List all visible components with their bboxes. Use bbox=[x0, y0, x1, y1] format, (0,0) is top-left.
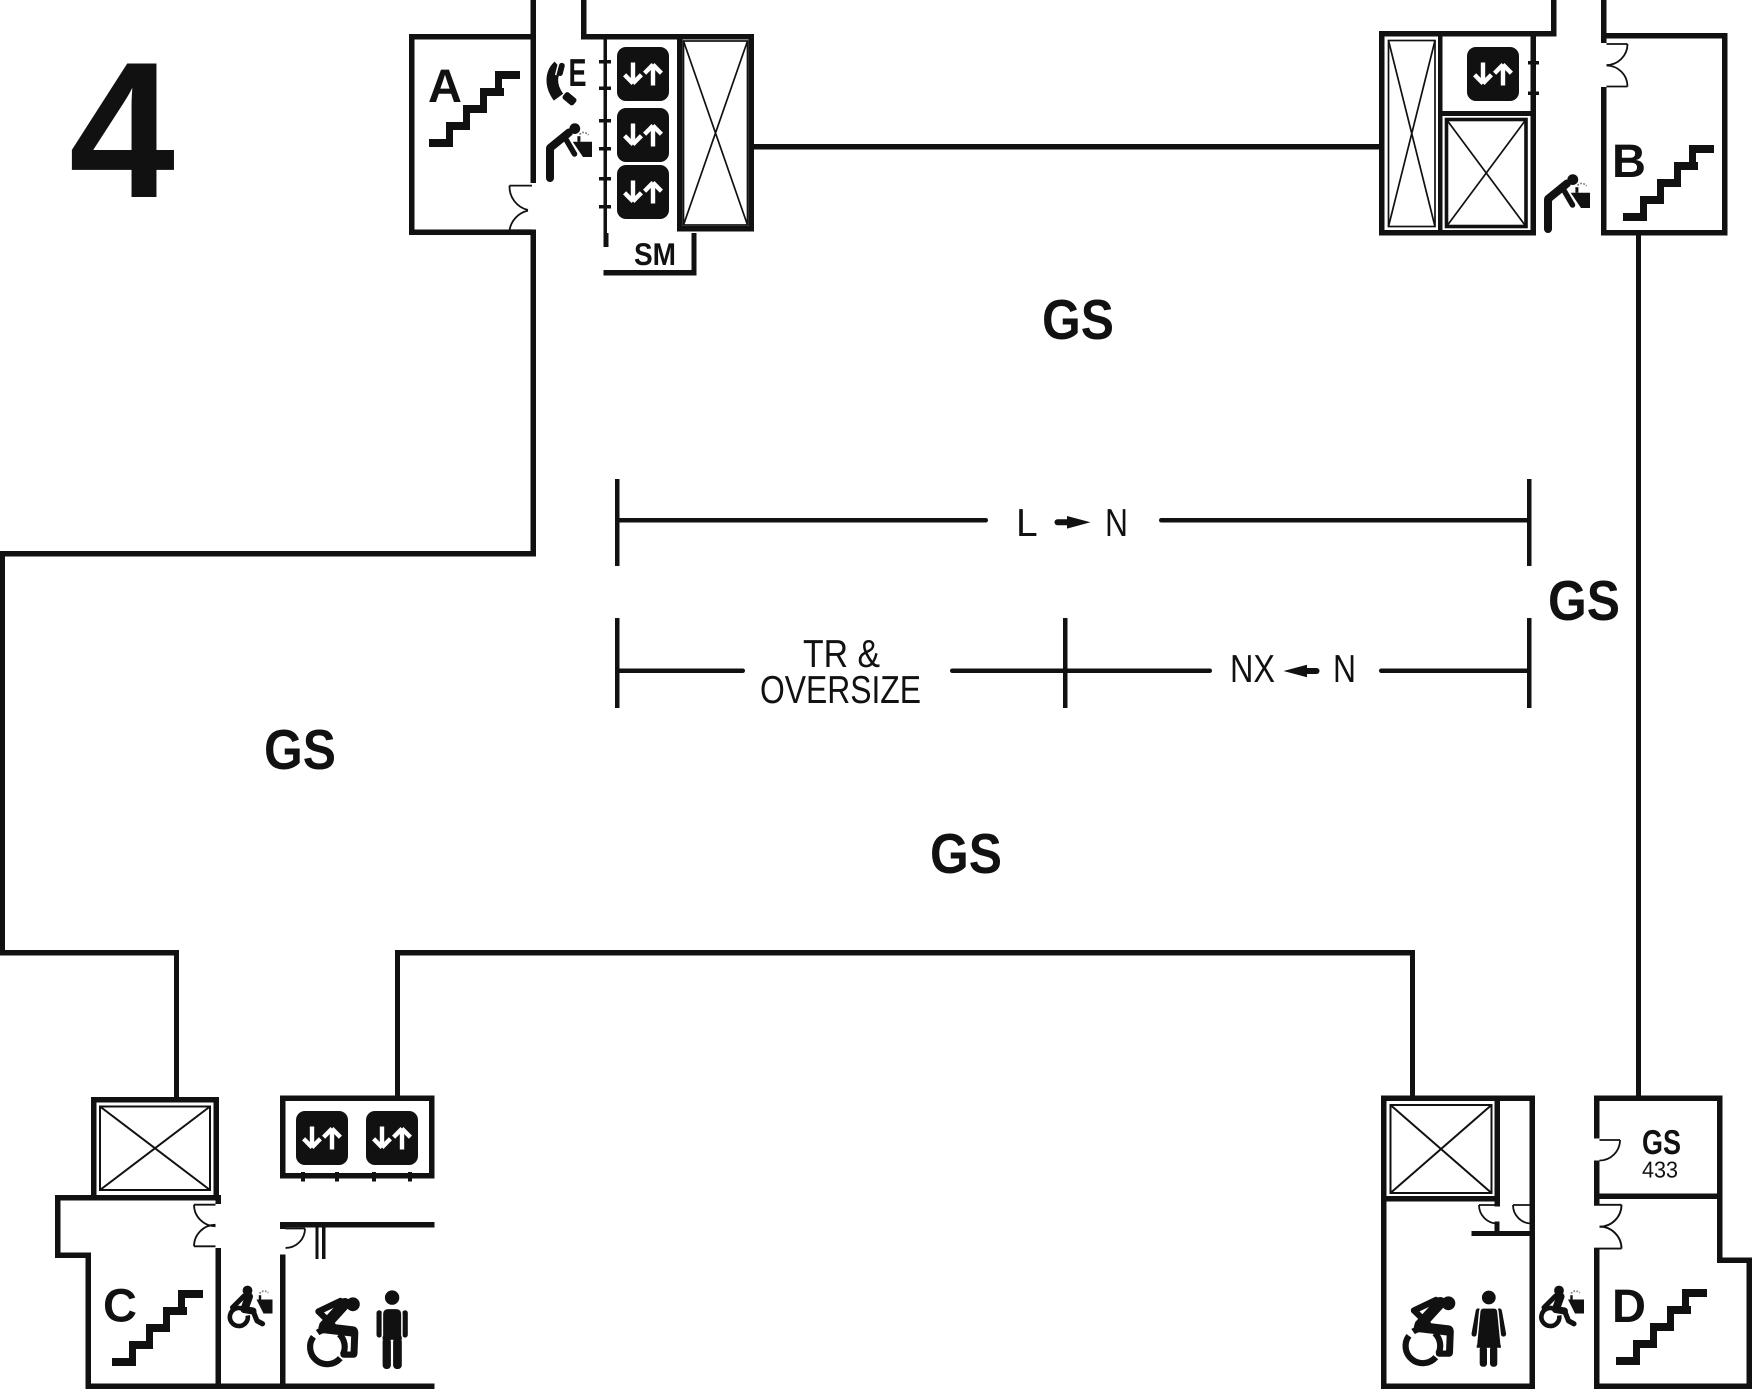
svg-text:OVERSIZE: OVERSIZE bbox=[760, 669, 921, 712]
svg-text:L: L bbox=[1016, 502, 1038, 545]
svg-text:4: 4 bbox=[69, 22, 175, 239]
svg-text:GS: GS bbox=[264, 718, 336, 781]
svg-text:N: N bbox=[1333, 648, 1356, 691]
svg-text:N: N bbox=[1105, 502, 1128, 545]
svg-text:GS: GS bbox=[1548, 569, 1620, 632]
svg-text:C: C bbox=[103, 1279, 137, 1332]
svg-text:NX: NX bbox=[1230, 648, 1275, 691]
svg-text:A: A bbox=[428, 59, 462, 112]
svg-text:D: D bbox=[1612, 1279, 1646, 1332]
svg-text:GS: GS bbox=[1042, 288, 1114, 351]
svg-text:433: 433 bbox=[1642, 1157, 1678, 1183]
svg-text:SM: SM bbox=[634, 236, 676, 272]
svg-text:B: B bbox=[1612, 134, 1646, 187]
svg-text:GS: GS bbox=[930, 822, 1002, 885]
svg-text:E: E bbox=[569, 52, 587, 95]
